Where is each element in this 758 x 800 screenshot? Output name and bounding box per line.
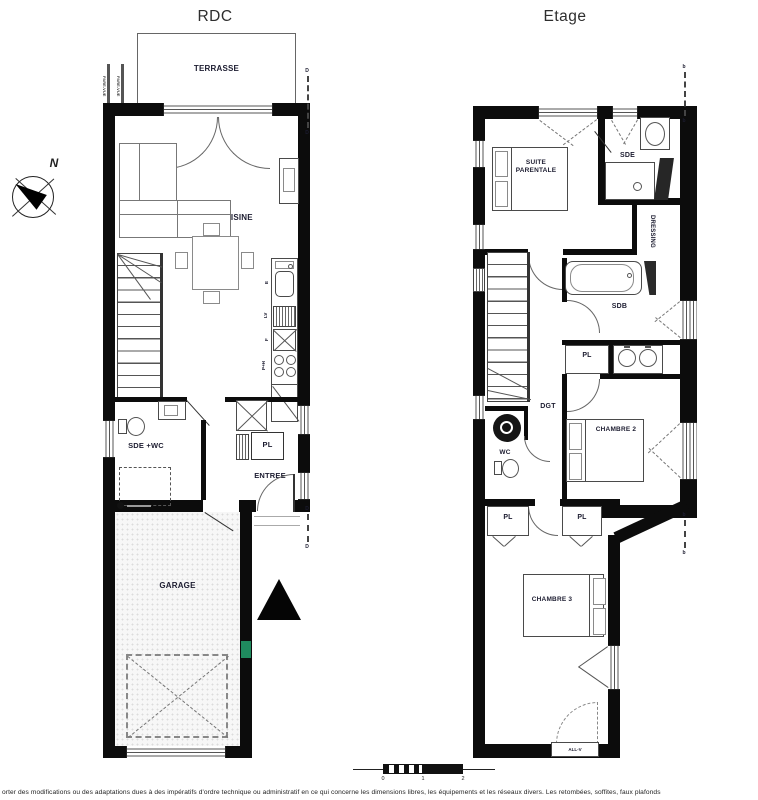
closet-fold-door xyxy=(569,536,581,547)
bed-line xyxy=(589,574,590,637)
washing-machine-drum xyxy=(500,421,513,434)
section-marker-letter: D xyxy=(302,130,312,136)
hall-pl-right-label: PL xyxy=(562,514,602,522)
kitchen-label-evier: E xyxy=(264,274,270,290)
ch3-bed xyxy=(523,574,604,637)
section-marker-line xyxy=(307,514,309,542)
compass: N xyxy=(4,156,66,222)
scale-bar: 0 1 2 xyxy=(350,760,500,784)
entree-door-leaf xyxy=(293,474,295,512)
wc-toilet-bowl xyxy=(502,459,519,478)
floorplan-canvas: RDC Etage N TERRASSE PARE-VUE PARE-VUE S… xyxy=(0,0,758,800)
etage-title: Etage xyxy=(505,8,625,26)
fence-label: PARE-VUE xyxy=(99,66,106,106)
garage-door-gap xyxy=(203,500,239,512)
wc-toilet-tank xyxy=(494,461,502,475)
entrance-triangle-icon xyxy=(257,579,301,620)
etage-window-top-2 xyxy=(612,106,638,119)
bathtub-inner xyxy=(570,264,634,292)
bed-line xyxy=(511,147,512,211)
etage-window-left-2 xyxy=(473,224,485,250)
bed-line xyxy=(585,419,586,482)
chambre3-label: CHAMBRE 3 xyxy=(526,596,578,604)
etage-window-top-1 xyxy=(538,106,598,119)
chair xyxy=(203,291,220,304)
section-marker-letter: b xyxy=(679,512,689,518)
compass-north-label: N xyxy=(46,156,62,170)
pl-door-hatch xyxy=(236,434,249,460)
toilet-bowl xyxy=(127,417,145,436)
hall-wall-bottom xyxy=(485,499,535,506)
window-swing-dash xyxy=(648,423,680,453)
dining-table xyxy=(192,236,239,290)
dgt-label: DGT xyxy=(528,403,568,411)
fridge-inner xyxy=(283,168,295,192)
hall-wall-bottom xyxy=(560,499,620,506)
window-swing-line xyxy=(579,666,609,688)
bed-pillow xyxy=(593,578,606,605)
section-marker-line xyxy=(307,76,309,128)
hall-pl-left-label: PL xyxy=(487,514,529,522)
vanity-sink xyxy=(639,349,657,367)
rdc-stairs xyxy=(117,253,163,400)
kitchen-label-lv: LV xyxy=(263,306,269,324)
shower-drain xyxy=(633,182,642,191)
scale-bar-checker xyxy=(383,764,423,774)
vanity-sink xyxy=(618,349,636,367)
window-swing-dash xyxy=(623,120,638,145)
footer-disclaimer: orter des modifications ou des adaptatio… xyxy=(2,789,756,800)
closet-fold-door xyxy=(504,536,516,547)
section-marker-letter: b xyxy=(679,118,689,124)
sde-dark-wedge xyxy=(654,158,674,200)
window-swing-dash xyxy=(563,119,597,145)
hob-burner xyxy=(286,355,296,365)
washer-tap-icon xyxy=(117,502,124,509)
sde-washbasin-bowl xyxy=(164,405,178,416)
window-swing-dash xyxy=(539,120,573,146)
ch2-door-arc xyxy=(567,379,600,412)
hob-burner xyxy=(274,367,284,377)
kitchen-label-plaques: P+H xyxy=(261,356,267,376)
bathtub-faucet xyxy=(627,273,632,278)
dishwasher xyxy=(273,306,296,327)
section-marker-line xyxy=(684,72,686,116)
pl-label: PL xyxy=(251,440,284,449)
kitchen-sink xyxy=(275,271,294,297)
section-marker-letter: D xyxy=(302,544,312,550)
washer-note-line xyxy=(127,505,151,507)
closet-fold-door xyxy=(581,536,593,547)
section-marker-letter: b xyxy=(679,64,689,70)
rdc-bay-window xyxy=(163,103,273,116)
scale-tick-1: 1 xyxy=(418,776,428,783)
sdb-label: SDB xyxy=(592,303,647,311)
sofa-line xyxy=(119,214,231,215)
suite-parentale-label: SUITE PARENTALE xyxy=(508,159,564,175)
closet-fold-door xyxy=(492,536,504,547)
etage-wall-left xyxy=(473,106,485,758)
sde-basin xyxy=(645,122,665,146)
chair xyxy=(203,223,220,236)
etage-window-right-ch2 xyxy=(680,422,697,480)
sdb-pl-label: PL xyxy=(565,352,609,360)
vanity-tap xyxy=(624,345,630,348)
etage-window-right-sdb xyxy=(680,300,697,340)
sde-wc-label: SDE +WC xyxy=(112,441,180,450)
scale-tick-2: 2 xyxy=(458,776,468,783)
etage-left-hatch xyxy=(473,268,485,292)
vanity-tap xyxy=(645,345,651,348)
faucet-icon xyxy=(288,264,293,269)
suite-door-arc xyxy=(528,255,563,290)
shower-tray xyxy=(605,162,655,200)
chair xyxy=(241,252,254,269)
ch3-door-arc xyxy=(528,506,558,536)
sde-door-leaf xyxy=(186,400,210,426)
bed-pillow xyxy=(593,608,606,635)
scale-bar-solid xyxy=(423,764,463,774)
section-marker-letter: D xyxy=(302,506,312,512)
bed-pillow xyxy=(569,423,582,450)
window-swing-line xyxy=(578,646,608,668)
suite-wall-a xyxy=(563,249,635,255)
ch3-window-right xyxy=(608,645,620,690)
kitchen-label-four: F xyxy=(264,333,270,347)
fence-line xyxy=(121,64,124,106)
hob-burner xyxy=(286,367,296,377)
washer-space-dashed xyxy=(119,467,171,506)
garage-door xyxy=(126,746,226,758)
section-marker-line xyxy=(684,520,686,548)
window-swing-dash xyxy=(649,448,681,478)
rdc-window-left-sde xyxy=(103,420,115,458)
toilet-tank xyxy=(118,419,127,434)
chambre2-label: CHAMBRE 2 xyxy=(588,426,644,434)
fence-label: PARE-VUE xyxy=(113,66,120,106)
french-door-arc xyxy=(218,117,270,169)
rdc-stairs-rail xyxy=(160,253,163,400)
wc-label: WC xyxy=(488,449,522,457)
fence-line xyxy=(107,64,110,106)
section-marker-letter: D xyxy=(302,68,312,74)
sofa-line xyxy=(177,200,178,238)
ch2-wall-top xyxy=(600,374,687,379)
etage-stairs-rail xyxy=(527,252,530,402)
rdc-window-right-1 xyxy=(298,405,310,435)
porch-step xyxy=(254,525,300,526)
garage-label: GARAGE xyxy=(115,581,240,591)
sde-wall-vert xyxy=(598,119,605,205)
allv-label: ALL-V xyxy=(551,747,599,752)
dressing-wall xyxy=(632,202,637,255)
rdc-title: RDC xyxy=(150,8,280,26)
bed-pillow xyxy=(495,181,508,207)
sde-label: SDE xyxy=(600,152,655,160)
dressing-label: DRESSING xyxy=(643,205,655,257)
window-swing-dash xyxy=(655,317,680,338)
section-marker-letter: b xyxy=(679,550,689,556)
bathtub-dark-ledge xyxy=(644,261,656,295)
wc-wall-top xyxy=(485,406,528,411)
sde-partition-vert xyxy=(201,420,206,500)
garage-wall-right xyxy=(240,500,252,758)
porch-step xyxy=(254,516,300,517)
chair xyxy=(175,252,188,269)
allv-swing-arc xyxy=(556,702,598,744)
wc-door-arc xyxy=(524,436,550,462)
green-utility-marker xyxy=(241,641,251,658)
rdc-wall-right xyxy=(298,103,310,512)
etage-window-left-1 xyxy=(473,140,485,168)
terrasse-label: TERRASSE xyxy=(137,64,296,74)
bed-pillow xyxy=(495,151,508,177)
scale-tick-0: 0 xyxy=(378,776,388,783)
hob-burner xyxy=(274,355,284,365)
bed-pillow xyxy=(569,453,582,480)
etage-window-left-3 xyxy=(473,395,485,420)
